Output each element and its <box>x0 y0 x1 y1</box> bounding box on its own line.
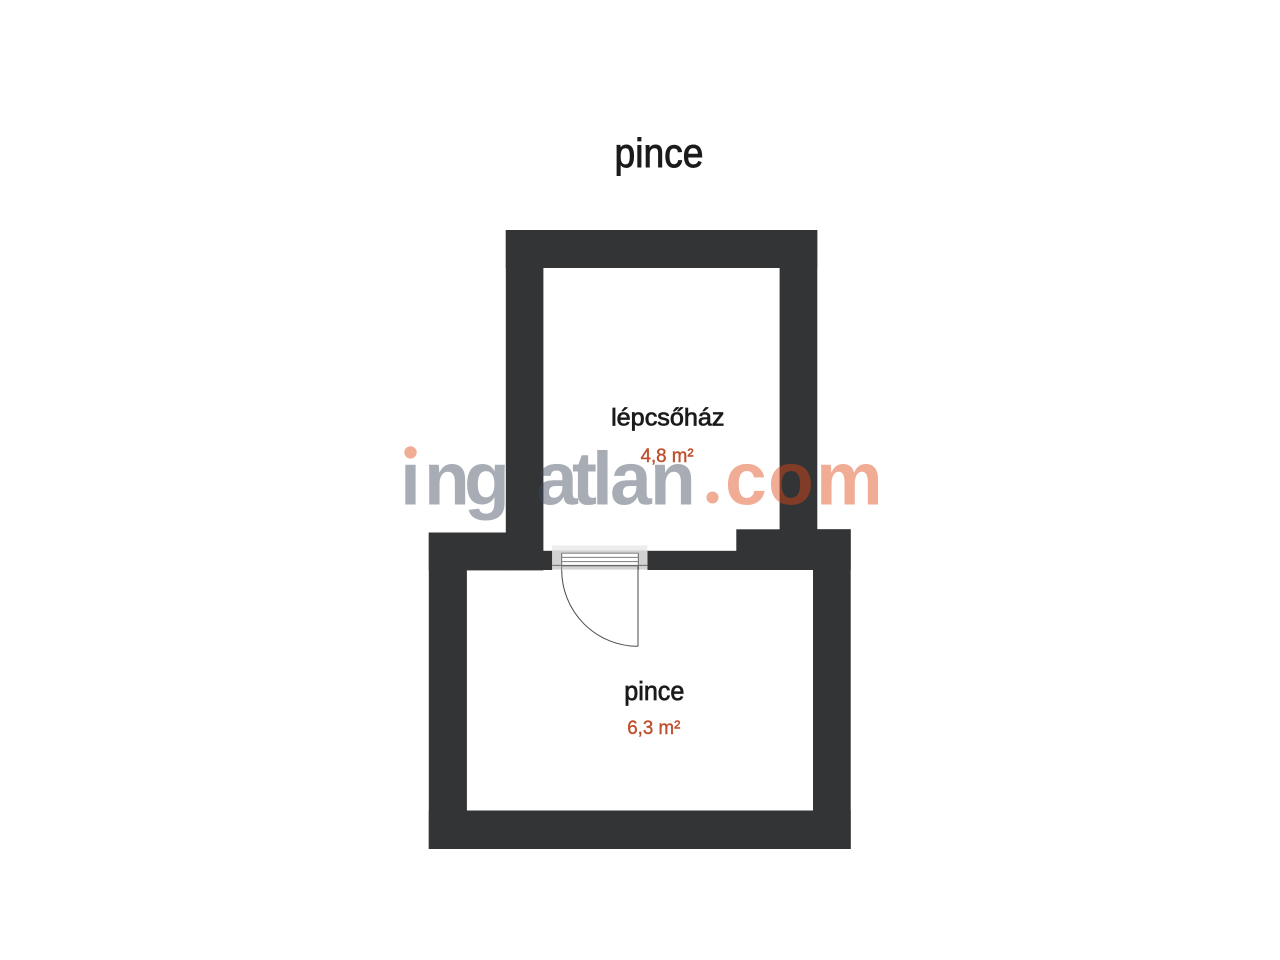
svg-text:com: com <box>725 437 883 521</box>
svg-text:6,3 m²: 6,3 m² <box>627 718 680 739</box>
svg-text:ıngatlan: ıngatlan <box>400 437 696 521</box>
svg-text:pince: pince <box>624 678 684 706</box>
svg-text:lépcsőház: lépcsőház <box>611 405 724 431</box>
svg-text:pince: pince <box>615 131 704 176</box>
